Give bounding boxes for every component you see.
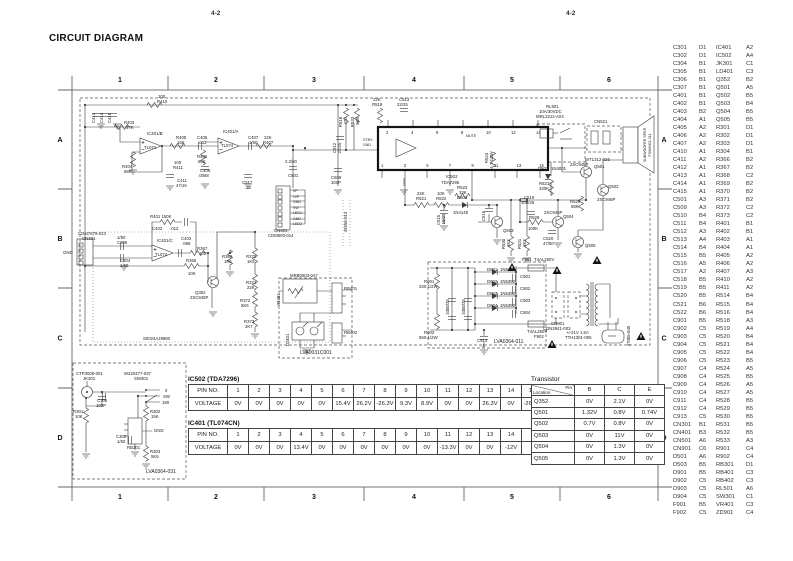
part-grid-location: A2 xyxy=(746,276,759,284)
part-ref: LD401 xyxy=(716,68,746,76)
component-label: MRB0503-047 xyxy=(290,273,318,278)
part-grid-location: B5 xyxy=(699,317,716,325)
component-label: Q504 xyxy=(563,214,574,219)
part-grid-location: B2 xyxy=(746,196,759,204)
part-ref: Q502 xyxy=(716,92,746,100)
component-label: R521 xyxy=(416,196,427,201)
part-grid-location: B4 xyxy=(746,100,759,108)
component-label: 1/50 xyxy=(249,140,258,145)
component-label: F902 xyxy=(534,334,544,339)
table-cell: 0V xyxy=(354,442,375,455)
part-ref: C412 xyxy=(673,164,699,172)
part-ref: C907 xyxy=(673,365,699,373)
part-grid-location: C1 xyxy=(746,60,759,68)
part-ref: C902 xyxy=(673,325,699,333)
component-label: GND xyxy=(293,217,301,221)
part-ref: C406 xyxy=(673,132,699,140)
parts-list-row: D902C5RB402C3 xyxy=(673,477,759,485)
parts-list-row: C302D1IC502A4 xyxy=(673,52,759,60)
component-label: R407 xyxy=(263,140,274,145)
component-label: TL074 xyxy=(221,143,234,148)
table-cell: 8 xyxy=(375,385,396,398)
component-label: R366 xyxy=(186,258,197,263)
parts-list-row: C404A1Q505B5 xyxy=(673,116,759,124)
parts-list-row: C516A5R406A2 xyxy=(673,260,759,268)
table-cell: 10 xyxy=(417,429,438,442)
component-label: 2SC945P xyxy=(570,162,589,167)
grid-ruler-label: B xyxy=(57,236,62,243)
part-ref: R524 xyxy=(716,365,746,373)
component-label: 330K xyxy=(539,186,549,191)
parts-list-row: C307B1Q501A5 xyxy=(673,84,759,92)
resistor-network-rb301 xyxy=(124,418,142,444)
table-cell: 15.4V xyxy=(333,398,354,411)
ic-pin-number: 15 xyxy=(539,163,544,168)
component-label: C414 xyxy=(99,112,104,123)
table-cell: 14 xyxy=(501,429,522,442)
component-label: 1N4148 xyxy=(453,210,469,215)
table-cell: 0V xyxy=(438,398,459,411)
grid-ruler-label: 2 xyxy=(214,494,218,501)
component-label: LVA0364-031 xyxy=(146,469,176,475)
part-ref: C413 xyxy=(673,172,699,180)
parts-list-row: C911C4R528B5 xyxy=(673,397,759,405)
table-cell: Q502 xyxy=(532,419,575,430)
table-cell: 11 xyxy=(438,429,459,442)
component-label: 5K6 xyxy=(241,303,249,308)
part-grid-location: C4 xyxy=(746,509,759,517)
part-ref: D903 xyxy=(673,485,699,493)
part-grid-location: C4 xyxy=(699,389,716,397)
component-label: C501 xyxy=(288,173,299,178)
part-grid-location: B4 xyxy=(699,220,716,228)
component-label: SW xyxy=(163,394,171,399)
part-ref: C403 xyxy=(673,108,699,116)
component-label: R410 xyxy=(157,99,168,104)
table-cell: 0V xyxy=(480,442,501,455)
part-ref: D901 xyxy=(673,469,699,477)
parts-list-row: C402B1Q503B4 xyxy=(673,100,759,108)
parts-list-row: C405A2R301D1 xyxy=(673,124,759,132)
component-label: .033 xyxy=(198,140,207,145)
part-ref: IC502 xyxy=(716,52,746,60)
component-label: 470 xyxy=(343,117,348,125)
component-label: IC401/A xyxy=(223,129,239,134)
grid-ruler-label: 3 xyxy=(312,494,316,501)
part-grid-location: B5 xyxy=(699,501,716,509)
parts-list-row: C908C4R525B5 xyxy=(673,373,759,381)
table-cell: 0V xyxy=(249,398,270,411)
table-cell: 12 xyxy=(459,385,480,398)
part-ref: C903 xyxy=(673,333,699,341)
table-cell: 0V xyxy=(249,442,270,455)
component-label: 22/25 xyxy=(397,102,408,107)
part-grid-location: A3 xyxy=(746,437,759,445)
part-grid-location: A2 xyxy=(699,124,716,132)
parts-list-row: C306B1Q352B2 xyxy=(673,76,759,84)
parts-list-row: C510B4R373C2 xyxy=(673,212,759,220)
ac-plug-icon xyxy=(602,322,624,343)
part-grid-location: B1 xyxy=(746,220,759,228)
part-grid-location: C5 xyxy=(699,477,716,485)
part-ref: R515 xyxy=(716,301,746,309)
part-ref: C911 xyxy=(673,397,699,405)
table-cell: 0V xyxy=(228,398,249,411)
part-ref: R516 xyxy=(716,309,746,317)
part-grid-location: C5 xyxy=(699,485,716,493)
part-ref: R303 xyxy=(716,140,746,148)
component-label: C904 xyxy=(520,310,531,315)
component-label: D902 xyxy=(487,279,498,284)
component-label: 10K xyxy=(188,271,196,276)
table-cell: 5 xyxy=(312,385,333,398)
part-ref: VR401 xyxy=(716,501,746,509)
component-label: MRL2212-A04 xyxy=(536,114,564,119)
part-grid-location: A2 xyxy=(746,44,759,52)
table-cell: 4 xyxy=(291,429,312,442)
part-ref: C304 xyxy=(673,60,699,68)
part-ref: R410 xyxy=(716,276,746,284)
table-cell: Q505 xyxy=(532,453,575,464)
part-grid-location: B1 xyxy=(699,100,716,108)
part-grid-location: B5 xyxy=(746,405,759,413)
parts-location-list: C301D1IC401A2C302D1IC502A4C304B1JK301C1C… xyxy=(673,44,759,517)
part-grid-location: B2 xyxy=(699,108,716,116)
part-grid-location: A5 xyxy=(699,260,716,268)
part-grid-location: B5 xyxy=(699,461,716,469)
part-ref: Q503 xyxy=(716,100,746,108)
part-ref: C519 xyxy=(673,284,699,292)
table-title: IC401 (TL074CN) xyxy=(188,420,543,427)
part-grid-location: B3 xyxy=(699,429,716,437)
part-grid-location: B5 xyxy=(746,429,759,437)
part-grid-location: C3 xyxy=(746,68,759,76)
component-label: MUTE xyxy=(466,134,477,138)
table-cell: 1.3V xyxy=(605,453,635,464)
mains-connector-pins xyxy=(555,297,577,313)
part-grid-location: A4 xyxy=(699,236,716,244)
part-ref: C513 xyxy=(673,236,699,244)
part-grid-location: A5 xyxy=(746,365,759,373)
component-label: TL074 xyxy=(155,252,168,257)
part-ref: R530 xyxy=(716,413,746,421)
grid-ruler-label: 6 xyxy=(607,494,611,501)
parts-list-row: C509A3R372C2 xyxy=(673,204,759,212)
part-grid-location: B1 xyxy=(699,68,716,76)
table-cell: 14 xyxy=(501,385,522,398)
ic-pin-number: 12 xyxy=(511,130,516,135)
component-label: R528 xyxy=(529,215,540,220)
part-ref: C414 xyxy=(673,180,699,188)
table-cell: 0V xyxy=(291,398,312,411)
part-grid-location: B2 xyxy=(746,76,759,84)
part-grid-location: C5 xyxy=(699,413,716,421)
parts-list-row: C403B2Q504B5 xyxy=(673,108,759,116)
transistor-q502 xyxy=(598,185,609,196)
part-ref: RB402 xyxy=(716,477,746,485)
transistor-q501 xyxy=(581,167,592,178)
parts-list-row: C511B4R401B1 xyxy=(673,220,759,228)
part-ref: R372 xyxy=(716,204,746,212)
grid-ruler-label: A xyxy=(57,137,62,144)
part-ref: C906 xyxy=(673,357,699,365)
table-cell: 2 xyxy=(249,429,270,442)
part-grid-location: B4 xyxy=(746,341,759,349)
part-grid-location: A5 xyxy=(746,389,759,397)
component-label: 0 xyxy=(165,388,168,393)
part-grid-location: B6 xyxy=(699,301,716,309)
part-ref: R525 xyxy=(716,373,746,381)
transistor-table: PinLocationBCEQ3520V2.1V0VQ5011.32V0.8V0… xyxy=(531,384,665,465)
component-label: R522 xyxy=(436,196,447,201)
part-grid-location: A2 xyxy=(746,284,759,292)
parts-list-row: C910C4R527A5 xyxy=(673,389,759,397)
parts-list-row: C304B1JK301C1 xyxy=(673,60,759,68)
part-ref: C516 xyxy=(673,260,699,268)
grid-ruler-label: 6 xyxy=(607,77,611,84)
parts-list-row: C512A3R402B1 xyxy=(673,228,759,236)
component-label: 47/50 xyxy=(543,241,554,246)
component-label: 47005-045 xyxy=(626,325,631,346)
table-cell: PIN NO. xyxy=(189,429,228,442)
part-grid-location: C4 xyxy=(699,397,716,405)
part-grid-location: B2 xyxy=(746,188,759,196)
part-ref: R407 xyxy=(716,268,746,276)
warning-icon xyxy=(553,266,562,274)
mains-connector-outline xyxy=(568,292,580,318)
component-label: IC401/C xyxy=(157,238,173,243)
grid-ruler-label: D xyxy=(57,435,62,442)
table-cell: 0V xyxy=(575,453,605,464)
component-label: 1K5 xyxy=(224,259,232,264)
ic-pin-number: 13 xyxy=(517,163,522,168)
table-cell: 0V xyxy=(635,453,665,464)
part-ref: R529 xyxy=(716,405,746,413)
parts-list-row: C902C5R519A4 xyxy=(673,325,759,333)
part-grid-location: B5 xyxy=(699,252,716,260)
parts-list-row: C913C5R530B5 xyxy=(673,413,759,421)
switch-sw301 xyxy=(145,389,147,403)
component-label: C305 xyxy=(117,240,128,245)
part-ref: SW301 xyxy=(716,493,746,501)
part-ref: R522 xyxy=(716,349,746,357)
table-cell: 9 xyxy=(396,429,417,442)
transistor-q352 xyxy=(208,277,219,288)
part-ref: C307 xyxy=(673,84,699,92)
diode-d503 xyxy=(462,202,468,208)
part-ref: R901 xyxy=(716,445,746,453)
table-cell: 0V xyxy=(270,442,291,455)
component-label: 10/25 xyxy=(441,213,446,224)
service-manual-page: { "page":{"page_number_left":"4-2","page… xyxy=(0,0,793,561)
mains-connector-outline xyxy=(552,292,564,318)
part-grid-location: C2 xyxy=(746,172,759,180)
parts-list-row: C904C5R521B4 xyxy=(673,341,759,349)
component-label: 100P xyxy=(331,180,341,185)
table-cell: Q501 xyxy=(532,407,575,418)
part-ref: R301 xyxy=(716,124,746,132)
table-cell: 3 xyxy=(270,429,291,442)
part-ref: CN401 xyxy=(673,429,699,437)
part-ref: D503 xyxy=(673,461,699,469)
parts-list-row: C305B1LD401C3 xyxy=(673,68,759,76)
part-ref: R406 xyxy=(716,260,746,268)
part-grid-location: C5 xyxy=(699,325,716,333)
table-cell: -26.3V xyxy=(375,398,396,411)
component-label: I/P xyxy=(293,189,298,193)
part-ref: R520 xyxy=(716,333,746,341)
table-cell: B xyxy=(575,385,605,396)
part-ref: R404 xyxy=(716,244,746,252)
component-label: C516 xyxy=(481,210,486,221)
parts-list-row: C515B5R405A2 xyxy=(673,252,759,260)
part-grid-location: B4 xyxy=(746,301,759,309)
part-ref: C401 xyxy=(673,92,699,100)
table-cell: VOLTAGE xyxy=(189,442,228,455)
table-cell: 2 xyxy=(249,385,270,398)
part-ref: C912 xyxy=(673,405,699,413)
part-ref: C521 xyxy=(673,301,699,309)
component-label: LED1 xyxy=(293,211,302,215)
part-ref: R519 xyxy=(716,325,746,333)
parts-list-row: C518B5R410A2 xyxy=(673,276,759,284)
table-title: IC502 (TDA7296) xyxy=(188,376,543,383)
jack-jk301 xyxy=(82,387,93,398)
component-label: JK301 xyxy=(83,376,96,381)
part-grid-location: A2 xyxy=(746,260,759,268)
diode-d501 xyxy=(545,174,551,180)
part-grid-location: A6 xyxy=(699,453,716,461)
table-cell: 8.9V xyxy=(417,398,438,411)
component-label: GND xyxy=(363,143,371,147)
parts-list-row: C415A1R370B2 xyxy=(673,188,759,196)
part-ref: R405 xyxy=(716,252,746,260)
part-grid-location: A1 xyxy=(746,236,759,244)
table-cell: 11V xyxy=(605,430,635,441)
part-grid-location: B4 xyxy=(699,212,716,220)
part-grid-location: C4 xyxy=(746,445,759,453)
part-grid-location: B2 xyxy=(746,156,759,164)
table-cell: C xyxy=(605,385,635,396)
parts-list-row: C519B5R411A2 xyxy=(673,284,759,292)
part-grid-location: C2 xyxy=(746,204,759,212)
table-cell: 0.74V xyxy=(635,407,665,418)
led-ld401 xyxy=(292,322,324,340)
component-label: 68K xyxy=(198,159,206,164)
parts-list-row: C410A1R304B1 xyxy=(673,148,759,156)
component-label: 22/25 xyxy=(337,142,342,153)
parts-list-row: C414A1R369B2 xyxy=(673,180,759,188)
part-ref: C518 xyxy=(673,276,699,284)
component-label: C402 xyxy=(152,226,163,231)
grid-ruler-label: 5 xyxy=(510,494,514,501)
part-ref: C909 xyxy=(673,381,699,389)
component-label: 1N4001 xyxy=(551,166,567,171)
part-ref: C410 xyxy=(673,148,699,156)
part-grid-location: A3 xyxy=(746,268,759,276)
part-grid-location: A1 xyxy=(699,164,716,172)
component-label: .068 xyxy=(182,241,191,246)
part-grid-location: A1 xyxy=(699,148,716,156)
part-grid-location: B1 xyxy=(699,92,716,100)
transistor-voltage-table: Transistor PinLocationBCEQ3520V2.1V0VQ50… xyxy=(531,376,665,465)
component-label: STBY- xyxy=(363,138,374,142)
part-ref: R367 xyxy=(716,164,746,172)
fuse-f902 xyxy=(528,321,544,327)
component-label: LD401 xyxy=(285,333,290,346)
grid-ruler-label: 5 xyxy=(510,77,514,84)
part-grid-location: B5 xyxy=(746,116,759,124)
component-label: 180 xyxy=(162,400,170,405)
table-cell: 0.8V xyxy=(605,419,635,430)
component-label: R519 xyxy=(372,102,383,107)
table-cell: VOLTAGE xyxy=(189,398,228,411)
table-cell: 0V xyxy=(635,430,665,441)
table-cell: Q504 xyxy=(532,441,575,452)
component-label: 1N5392 xyxy=(500,291,516,296)
component-label: 100K xyxy=(528,226,538,231)
part-grid-location: D1 xyxy=(699,52,716,60)
table-cell: 6 xyxy=(333,385,354,398)
part-ref: C913 xyxy=(673,413,699,421)
transformer xyxy=(586,282,598,326)
component-label: 22K xyxy=(247,285,255,290)
part-ref: D501 xyxy=(673,453,699,461)
table-cell: 0V xyxy=(501,398,522,411)
part-grid-location: B5 xyxy=(699,276,716,284)
component-label: T4AL250V xyxy=(534,257,554,262)
parts-list-row: D501A6R902C4 xyxy=(673,453,759,461)
parts-list-row: C407A2R303D1 xyxy=(673,140,759,148)
part-ref: C415 xyxy=(673,188,699,196)
part-ref: C520 xyxy=(673,292,699,300)
part-ref: R526 xyxy=(716,381,746,389)
component-label: RB401 xyxy=(344,286,358,291)
table-cell: -13.3V xyxy=(438,442,459,455)
table-cell: 26.3V xyxy=(480,398,501,411)
component-label: 2SC945P xyxy=(544,210,563,215)
part-ref: CN901 xyxy=(673,445,699,453)
component-label: 15K xyxy=(151,414,159,419)
component-label: C415 xyxy=(107,112,112,123)
part-ref: R366 xyxy=(716,156,746,164)
part-ref: RB401 xyxy=(716,469,746,477)
component-label: 5K6 xyxy=(355,117,360,125)
part-grid-location: C1 xyxy=(746,493,759,501)
table-cell: 0.7V xyxy=(575,419,605,430)
part-grid-location: A3 xyxy=(699,196,716,204)
parts-list-row: C906C5R523B5 xyxy=(673,357,759,365)
parts-list-row: C514B4R404A1 xyxy=(673,244,759,252)
part-ref: C517 xyxy=(673,268,699,276)
table-cell: 3 xyxy=(270,385,291,398)
parts-list-row: D503B5RB301D1 xyxy=(673,461,759,469)
component-label: CN301 xyxy=(82,236,96,241)
component-label: 3300/35 xyxy=(445,299,450,315)
table-cell: 1.3V xyxy=(605,441,635,452)
component-label: 10K xyxy=(75,414,83,419)
table-cell: 0V xyxy=(575,430,605,441)
table-cell: 0V xyxy=(459,398,480,411)
table-cell: 0V xyxy=(228,442,249,455)
part-grid-location: B5 xyxy=(699,469,716,477)
component-label: C902 xyxy=(520,286,531,291)
component-label: CN521 xyxy=(594,119,608,124)
component-label: .1 xyxy=(481,343,485,348)
component-label: SUBWOOFER SPKR xyxy=(643,127,647,162)
component-label: FSW4002-311 xyxy=(648,134,652,157)
grid-ruler-label: A xyxy=(661,137,666,144)
